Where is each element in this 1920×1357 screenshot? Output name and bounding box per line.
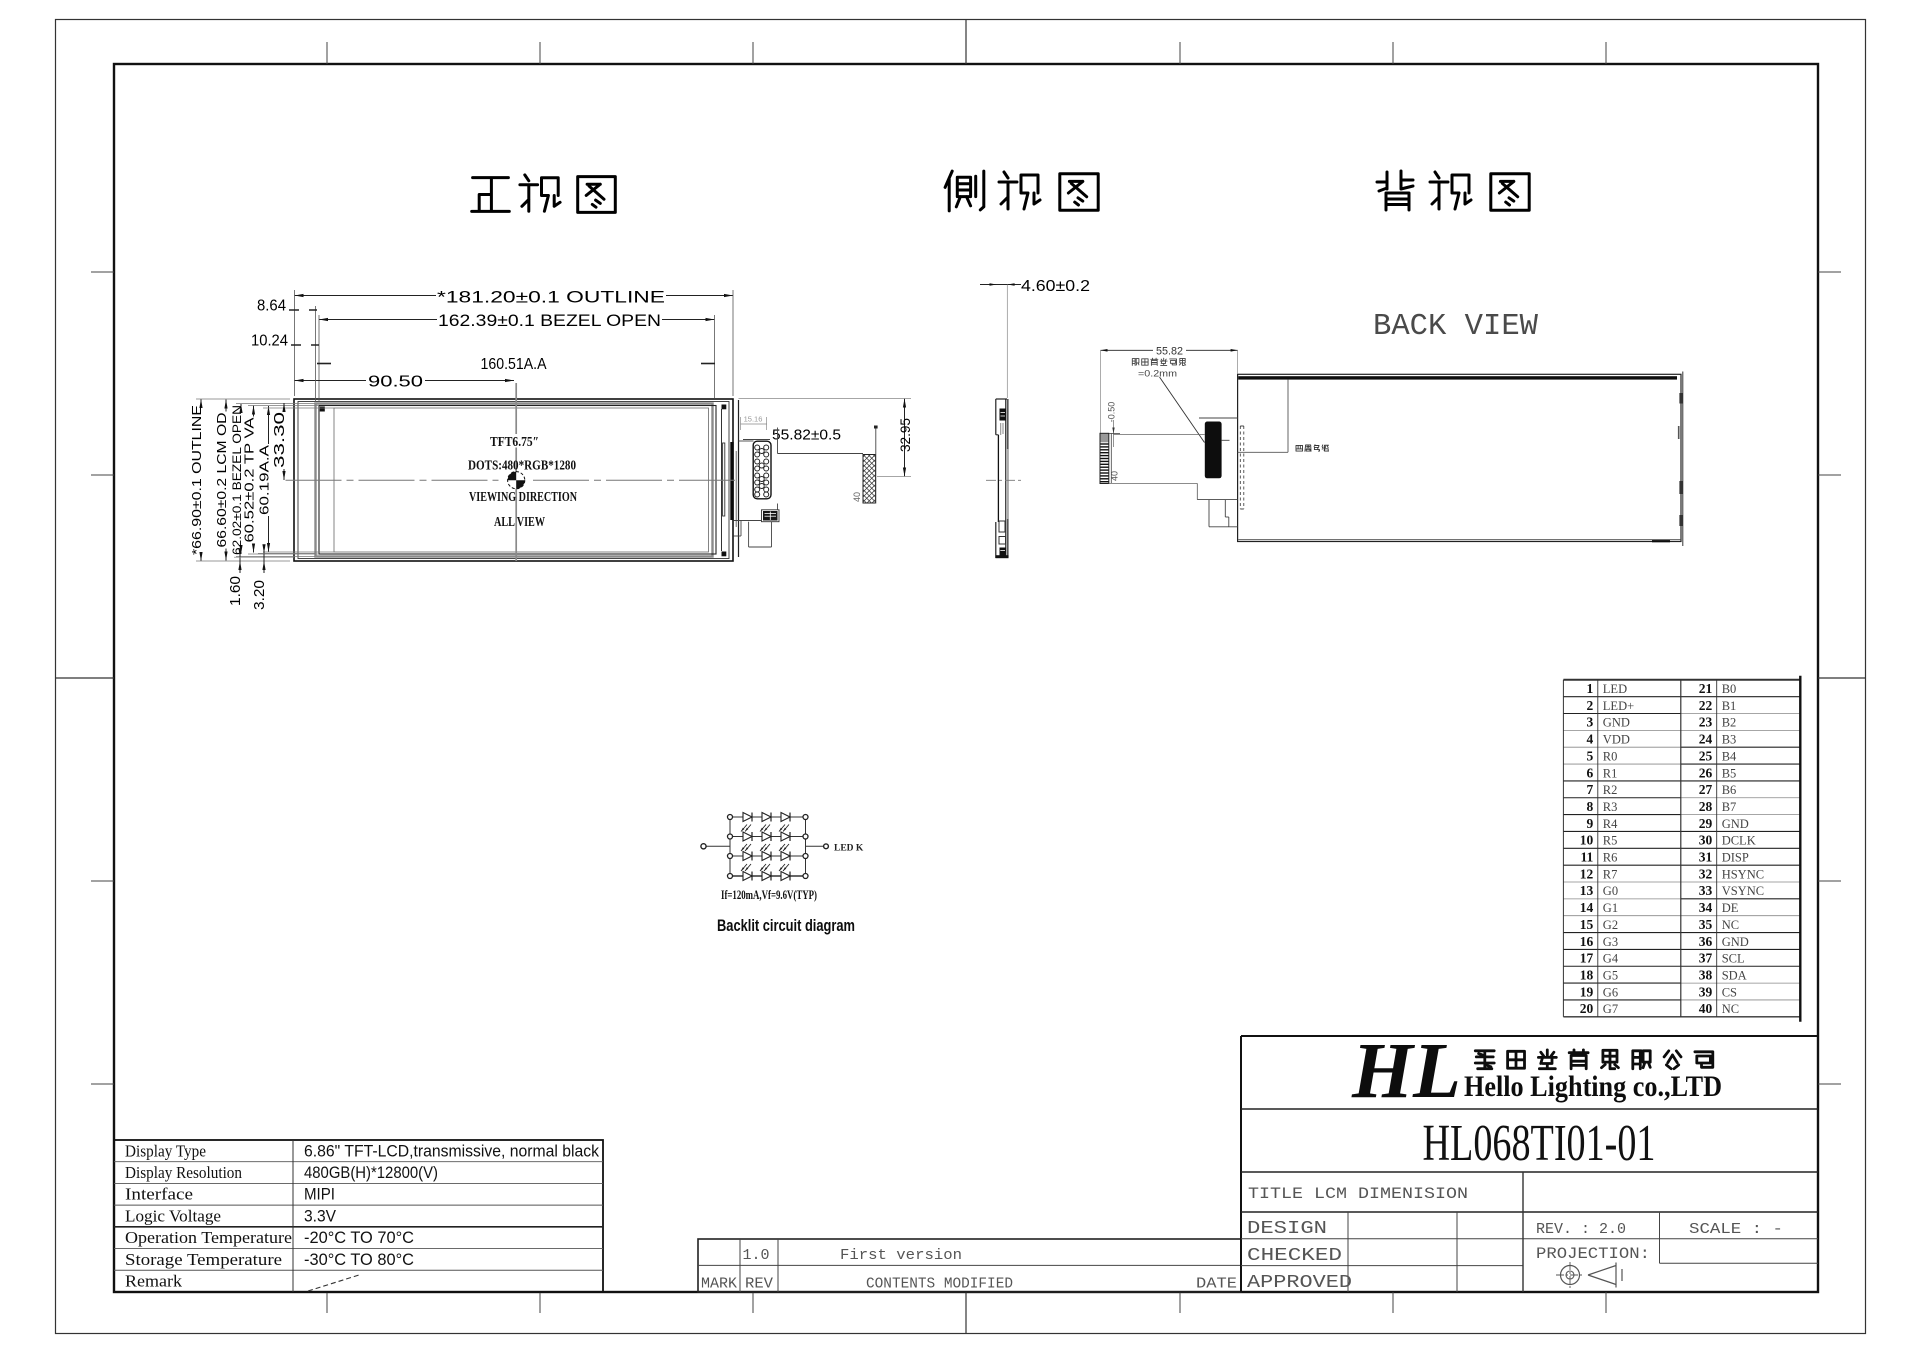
svg-text:Display Type: Display Type <box>125 1141 206 1160</box>
svg-text:B6: B6 <box>1722 783 1737 797</box>
svg-text:66.60±0.2 LCM OD: 66.60±0.2 LCM OD <box>215 413 229 548</box>
svg-text:39: 39 <box>1699 984 1713 999</box>
svg-text:13: 13 <box>1580 883 1594 898</box>
svg-text:27: 27 <box>1699 782 1713 797</box>
svg-text:34: 34 <box>1699 900 1713 915</box>
svg-text:1: 1 <box>1587 681 1594 696</box>
svg-text:REV. : 2.0: REV. : 2.0 <box>1536 1221 1626 1238</box>
svg-text:17: 17 <box>1580 951 1594 966</box>
svg-text:LED+: LED+ <box>1603 699 1634 713</box>
svg-text:160.51A.A: 160.51A.A <box>481 356 547 373</box>
svg-text:55.82±0.5: 55.82±0.5 <box>772 428 841 444</box>
svg-text:38: 38 <box>1699 967 1713 982</box>
svg-text:R6: R6 <box>1603 851 1618 865</box>
svg-text:Storage Temperature: Storage Temperature <box>125 1250 282 1269</box>
svg-text:26: 26 <box>1699 765 1713 780</box>
svg-text:33.30: 33.30 <box>271 412 288 468</box>
svg-text:18: 18 <box>1580 967 1594 982</box>
svg-text:12: 12 <box>1580 866 1594 881</box>
svg-text:NC: NC <box>1722 1002 1739 1016</box>
svg-text:22: 22 <box>1699 698 1713 713</box>
svg-text:DE: DE <box>1722 901 1739 915</box>
svg-text:G3: G3 <box>1603 935 1618 949</box>
svg-text:VSYNC: VSYNC <box>1722 884 1764 898</box>
svg-text:55.82: 55.82 <box>1156 346 1183 358</box>
svg-text:1.0: 1.0 <box>742 1247 769 1264</box>
svg-text:15.16: 15.16 <box>744 415 763 424</box>
svg-text:Hello Lighting co.,LTD: Hello Lighting co.,LTD <box>1464 1070 1722 1103</box>
svg-text:G0: G0 <box>1603 884 1618 898</box>
svg-text:CS: CS <box>1722 985 1737 999</box>
svg-text:Logic Voltage: Logic Voltage <box>125 1206 221 1225</box>
svg-text:B0: B0 <box>1722 682 1737 696</box>
svg-text:LED: LED <box>1603 682 1627 696</box>
svg-text:Interface: Interface <box>125 1185 193 1204</box>
svg-text:14: 14 <box>1580 900 1594 915</box>
svg-text:2: 2 <box>1587 698 1594 713</box>
svg-text:SCALE : -: SCALE : - <box>1689 1221 1783 1238</box>
svg-text:15: 15 <box>1580 917 1594 932</box>
svg-text:If=120mA,Vf=9.6V(TYP): If=120mA,Vf=9.6V(TYP) <box>721 887 817 902</box>
svg-text:Backlit circuit diagram: Backlit circuit diagram <box>717 916 855 935</box>
svg-text:8.64: 8.64 <box>257 298 286 315</box>
svg-text:DISP: DISP <box>1722 851 1749 865</box>
svg-text:B3: B3 <box>1722 733 1737 747</box>
svg-text:30: 30 <box>1699 833 1713 848</box>
svg-text:G6: G6 <box>1603 985 1618 999</box>
svg-text:ALL VIEW: ALL VIEW <box>494 514 545 529</box>
svg-text:R4: R4 <box>1603 817 1618 831</box>
svg-text:R1: R1 <box>1603 766 1618 780</box>
svg-text:SDA: SDA <box>1722 968 1747 982</box>
svg-text:G5: G5 <box>1603 968 1618 982</box>
svg-text:3: 3 <box>1587 715 1594 730</box>
svg-text:*66.90±0.1 OUTLINE: *66.90±0.1 OUTLINE <box>190 405 204 555</box>
svg-text:-20°C TO 70°C: -20°C TO 70°C <box>304 1229 414 1247</box>
svg-text:5: 5 <box>1587 748 1594 763</box>
svg-text:B4: B4 <box>1722 749 1737 763</box>
svg-text:8: 8 <box>1587 799 1594 814</box>
svg-text:29: 29 <box>1699 816 1713 831</box>
svg-text:19: 19 <box>1580 984 1594 999</box>
svg-text:Remark: Remark <box>125 1272 183 1291</box>
svg-text:First version: First version <box>840 1247 962 1264</box>
svg-text:PROJECTION:: PROJECTION: <box>1536 1245 1650 1263</box>
svg-text:1.60: 1.60 <box>227 576 244 606</box>
svg-text:B7: B7 <box>1722 800 1737 814</box>
svg-text:31: 31 <box>1699 850 1713 865</box>
svg-text:TITLE LCM DIMENISION: TITLE LCM DIMENISION <box>1248 1185 1468 1203</box>
svg-text:-30°C TO 80°C: -30°C TO 80°C <box>304 1251 414 1269</box>
svg-text:3.20: 3.20 <box>251 580 268 610</box>
svg-text:HL: HL <box>1351 1028 1461 1115</box>
svg-text:R3: R3 <box>1603 800 1618 814</box>
svg-text:24: 24 <box>1699 732 1713 747</box>
svg-text:Display Resolution: Display Resolution <box>125 1163 242 1182</box>
svg-text:HL068TI01-01: HL068TI01-01 <box>1423 1115 1656 1172</box>
svg-text:SCL: SCL <box>1722 952 1745 966</box>
svg-text:9: 9 <box>1587 816 1594 831</box>
svg-text:DOTS:480*RGB*1280: DOTS:480*RGB*1280 <box>468 458 576 473</box>
svg-text:23: 23 <box>1699 715 1713 730</box>
svg-text:162.39±0.1 BEZEL OPEN: 162.39±0.1 BEZEL OPEN <box>438 311 661 330</box>
svg-text:B2: B2 <box>1722 716 1737 730</box>
svg-text:33: 33 <box>1699 883 1713 898</box>
svg-text:G4: G4 <box>1603 952 1619 966</box>
svg-text:7: 7 <box>1587 782 1594 797</box>
svg-text:DATE: DATE <box>1196 1276 1237 1293</box>
svg-text:R5: R5 <box>1603 834 1618 848</box>
svg-text:6.86" TFT-LCD,transmissive, no: 6.86" TFT-LCD,transmissive, normal black <box>304 1142 600 1160</box>
svg-text:4: 4 <box>1587 732 1594 747</box>
svg-text:40: 40 <box>1699 1001 1713 1016</box>
svg-text:VIEWING DIRECTION: VIEWING DIRECTION <box>469 489 577 504</box>
svg-text:R7: R7 <box>1603 867 1618 881</box>
svg-text:TFT6.75″: TFT6.75″ <box>490 434 539 449</box>
svg-text:B1: B1 <box>1722 699 1737 713</box>
svg-text:=0.2mm: =0.2mm <box>1138 369 1177 379</box>
svg-text:G2: G2 <box>1603 918 1618 932</box>
svg-text:-0.50: -0.50 <box>1107 402 1117 423</box>
svg-text:90.50: 90.50 <box>368 374 423 391</box>
svg-text:25: 25 <box>1699 748 1713 763</box>
svg-text:R2: R2 <box>1603 783 1618 797</box>
svg-text:32.95: 32.95 <box>897 418 913 452</box>
svg-text:21: 21 <box>1699 681 1713 696</box>
svg-text:20: 20 <box>1580 1001 1594 1016</box>
svg-text:40: 40 <box>852 492 862 502</box>
svg-text:G1: G1 <box>1603 901 1618 915</box>
svg-text:G7: G7 <box>1603 1002 1618 1016</box>
svg-text:DESIGN: DESIGN <box>1247 1219 1327 1239</box>
svg-text:28: 28 <box>1699 799 1713 814</box>
svg-text:60.52±0.2 TP VA: 60.52±0.2 TP VA <box>243 417 257 543</box>
svg-text:APPROVED: APPROVED <box>1247 1273 1352 1293</box>
svg-text:MIPI: MIPI <box>304 1186 335 1204</box>
svg-text:GND: GND <box>1603 716 1630 730</box>
svg-text:LED K: LED K <box>834 844 864 854</box>
svg-text:11: 11 <box>1581 850 1594 865</box>
svg-text:16: 16 <box>1580 934 1594 949</box>
svg-text:4.60±0.2: 4.60±0.2 <box>1021 278 1090 295</box>
svg-text:GND: GND <box>1722 935 1749 949</box>
svg-text:DCLK: DCLK <box>1722 834 1756 848</box>
svg-text:3.3V: 3.3V <box>304 1207 336 1225</box>
svg-text:Operation Temperature: Operation Temperature <box>125 1228 292 1247</box>
svg-text:40: 40 <box>1110 471 1120 481</box>
svg-text:36: 36 <box>1699 934 1713 949</box>
svg-text:B5: B5 <box>1722 766 1737 780</box>
svg-text:480GB(H)*12800(V): 480GB(H)*12800(V) <box>304 1164 438 1182</box>
svg-text:10: 10 <box>1580 833 1594 848</box>
svg-text:60.19A.A: 60.19A.A <box>258 444 272 515</box>
svg-text:HSYNC: HSYNC <box>1722 867 1764 881</box>
svg-text:CONTENTS MODIFIED: CONTENTS MODIFIED <box>866 1277 1013 1293</box>
svg-text:CHECKED: CHECKED <box>1247 1246 1342 1266</box>
svg-text:32: 32 <box>1699 866 1713 881</box>
svg-text:35: 35 <box>1699 917 1713 932</box>
svg-text:10.24: 10.24 <box>251 333 288 350</box>
svg-text:MARK: MARK <box>701 1276 737 1293</box>
svg-text:GND: GND <box>1722 817 1749 831</box>
svg-text:6: 6 <box>1587 765 1594 780</box>
svg-text:BACK VIEW: BACK VIEW <box>1373 309 1538 344</box>
svg-text:R0: R0 <box>1603 749 1618 763</box>
svg-text:37: 37 <box>1699 951 1713 966</box>
svg-text:REV: REV <box>745 1276 773 1293</box>
svg-text:NC: NC <box>1722 918 1739 932</box>
svg-text:*181.20±0.1 OUTLINE: *181.20±0.1 OUTLINE <box>437 288 665 307</box>
svg-text:VDD: VDD <box>1603 733 1630 747</box>
